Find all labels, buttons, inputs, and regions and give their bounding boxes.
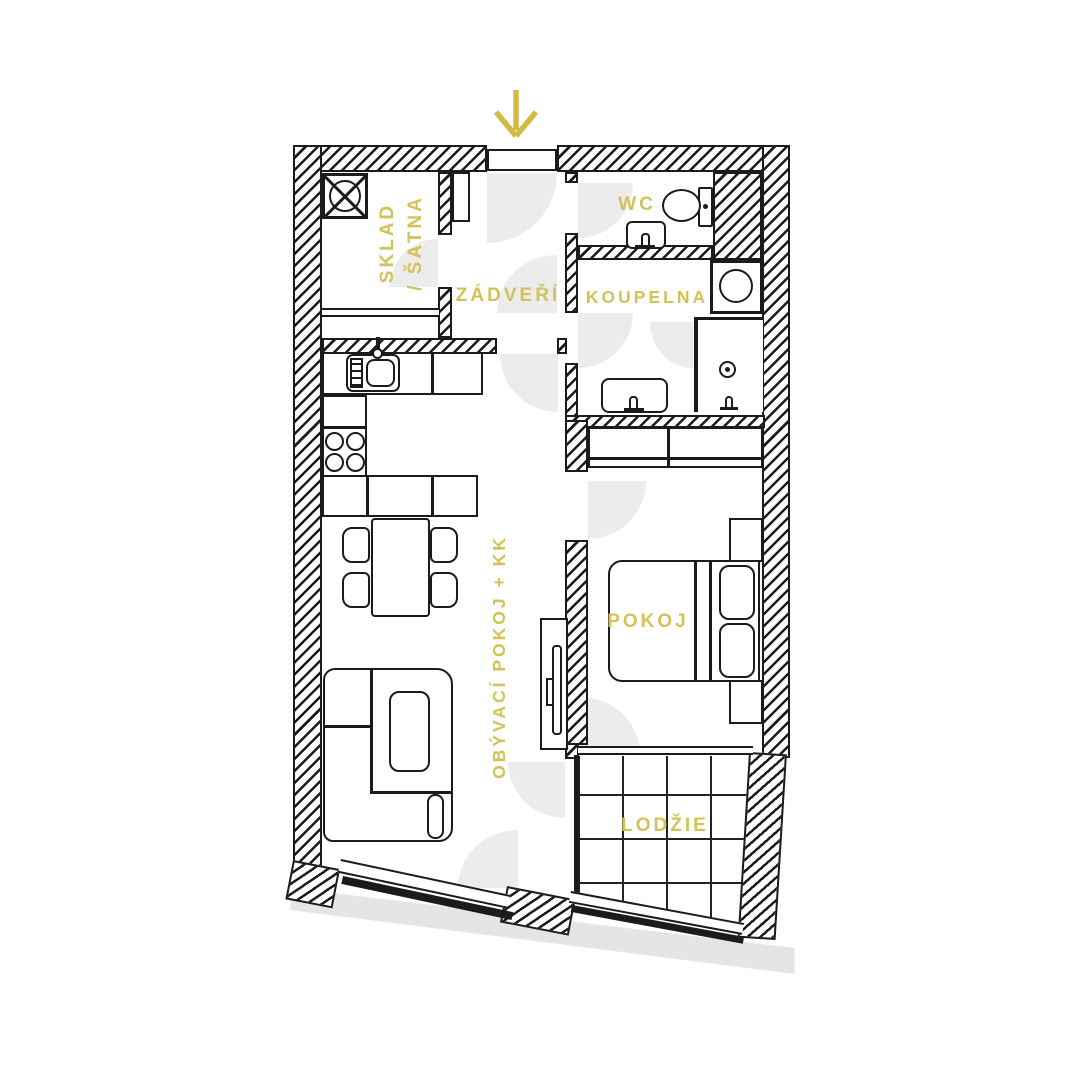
wall-right-upper [762,145,790,758]
toilet-button [703,204,708,209]
sink-faucet [372,348,383,359]
sofa-chaise [389,691,430,772]
dining-chair-4 [430,572,458,608]
nightstand-bottom [729,680,763,724]
tv-screen [552,645,562,735]
washing-machine-drum [719,269,753,303]
nightstand-top [729,518,763,562]
wall-hall-bottom-right [557,338,567,354]
wall-hall-right-c [565,363,578,420]
toilet-bowl [662,189,701,222]
kitchen-counter-lower [322,475,478,517]
bedroom-door-swing [588,481,646,539]
sklad-line1: SKLAD [374,168,402,318]
counter-divider-3 [366,476,369,516]
pillow-bottom [719,623,755,678]
wc-tap-base [635,245,655,248]
sofa-cushion-divider [324,725,371,728]
wardrobe-front-line [589,457,762,460]
stove-burner-4 [346,453,365,472]
bedroom-loggia-window [578,746,753,755]
dining-table [371,518,430,617]
room-label-obyvaci-pokoj: OBÝVACÍ POKOJ + KK [485,527,509,787]
wall-top-right [557,145,790,172]
sklad-line2: / ŠATNA [402,168,430,318]
stove-burner-3 [325,453,344,472]
shower-door-swing [650,322,693,368]
loggia-left-wall [574,755,578,898]
dining-chair-1 [342,527,370,563]
hall-living-door-swing [500,354,558,412]
shower-tap-base [720,407,738,410]
room-label-zadveri: ZÁDVEŘÍ [448,282,568,310]
wall-left [293,145,322,867]
room-label-lodzie: LODŽIE [613,812,717,840]
shower-drain-dot [725,367,730,372]
sofa-seat-line [370,791,452,794]
bed-mattress-line-2 [709,561,712,681]
sink-faucet-stem [376,337,380,349]
basin-tap-base [624,408,644,412]
pillow-top [719,565,755,620]
wall-sklad-right-a [438,172,452,235]
hall-niche [452,172,470,222]
four-burner-stove-icon [325,432,344,451]
wall-living-bedroom-a [565,420,588,472]
down-arrow-icon [489,86,543,154]
sofa-back-line [370,669,373,792]
wall-living-bedroom-b [565,540,588,745]
window-casement-swing [458,830,518,888]
dining-chair-2 [342,572,370,608]
room-label-wc: WC [612,191,662,219]
sink-basin [366,359,395,387]
entrance-door-swing [487,173,557,243]
counter-divider-1 [431,353,434,394]
sofa-armrest [427,794,444,839]
wardrobe-divider [667,428,670,466]
counter-divider-4 [431,476,434,516]
living-loggia-door-swing [508,762,565,818]
dining-chair-3 [430,527,458,563]
room-label-koupelna: KOUPELNA [582,283,712,311]
sink-drainer [350,358,363,388]
floor-plan: SKLAD / ŠATNA ZÁDVEŘÍ WC KOUPELNA OBÝVAC… [0,0,1080,1080]
wardrobe [588,427,763,468]
counter-divider-2 [323,426,366,429]
wall-hall-right-a [565,172,578,183]
room-label-pokoj: POKOJ [598,608,698,636]
wall-wc-right-block [713,172,762,260]
room-label-sklad: SKLAD / ŠATNA [374,168,434,318]
bath-door-swing [578,313,633,368]
stove-burner-2 [346,432,365,451]
